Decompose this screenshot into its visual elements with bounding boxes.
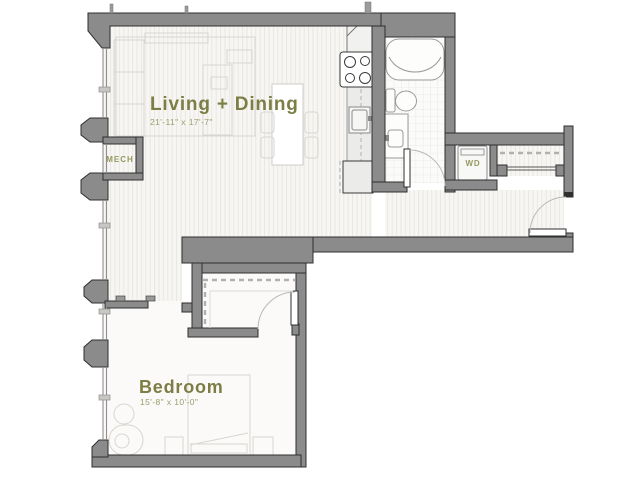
living-dining-label: Living + Dining — [150, 94, 299, 115]
pillar — [92, 440, 108, 457]
window-mullion — [99, 309, 110, 314]
bedroom-closet-west-wall — [192, 263, 202, 335]
mech-south-wall — [103, 173, 143, 180]
kitchen-bath-wall — [372, 26, 385, 183]
closet-door-jamb — [292, 324, 299, 335]
bathroom-north-wall — [381, 13, 455, 37]
pillar — [84, 280, 108, 303]
floor-plan-canvas: Living + Dining 21'-11" x 17'-7" Bedroom… — [0, 0, 640, 480]
bathtub — [386, 39, 444, 80]
living-floor — [103, 26, 372, 237]
door-jamb-cap — [564, 192, 573, 197]
bedroom-closet-north-wall — [192, 263, 306, 273]
living-dining-dimensions: 21'-11" x 17'-7" — [150, 117, 213, 127]
floor-plan: Living + Dining 21'-11" x 17'-7" Bedroom… — [0, 0, 640, 480]
bedroom-closet-south-wall — [188, 328, 258, 337]
refrigerator — [347, 26, 375, 53]
closet-west-stub — [182, 303, 192, 312]
bedroom-south-wall — [92, 455, 301, 467]
bedroom-dimensions: 15'-8" x 10'-0" — [140, 397, 198, 407]
closet-jamb-right — [556, 165, 564, 176]
base-cabinet — [340, 161, 373, 193]
stove — [340, 52, 374, 87]
wall-ticks — [110, 2, 371, 13]
toilet — [386, 89, 417, 112]
laundry-south-wall — [445, 180, 497, 190]
bedroom-closet-floor — [202, 273, 296, 328]
kitchen-sink — [349, 107, 373, 133]
pillar — [84, 340, 108, 367]
bathroom-east-wall — [445, 37, 455, 192]
laundry-closet-divider — [490, 145, 497, 176]
mech-label: MECH — [106, 155, 134, 164]
window-mullion — [99, 223, 110, 228]
closet-jamb-left — [497, 165, 507, 176]
east-wall-upper — [564, 126, 573, 197]
window-mullion — [99, 87, 110, 92]
closet-north-wall — [445, 133, 573, 145]
window-mullion — [99, 395, 110, 400]
bedroom-north-wall — [182, 237, 313, 263]
bathroom-south-stub — [372, 182, 407, 192]
washer-dryer-label: WD — [466, 159, 481, 168]
bedroom-label: Bedroom — [139, 377, 224, 397]
passage-floor — [103, 237, 182, 301]
faucet — [385, 135, 389, 141]
